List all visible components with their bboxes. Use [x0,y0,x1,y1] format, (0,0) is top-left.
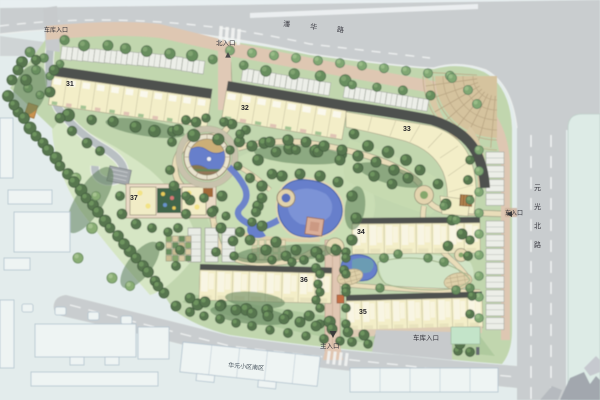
svg-text:主入口: 主入口 [320,341,340,350]
svg-text:36: 36 [300,277,308,284]
svg-text:路: 路 [534,240,541,249]
svg-text:33: 33 [403,126,411,133]
svg-text:34: 34 [357,229,365,236]
svg-text:32: 32 [241,105,249,112]
svg-text:车库入口: 车库入口 [413,333,439,342]
svg-text:光: 光 [534,202,541,211]
svg-text:北入口: 北入口 [216,39,236,47]
svg-text:35: 35 [359,309,367,316]
svg-text:31: 31 [66,81,74,88]
svg-text:东入口: 东入口 [505,209,523,217]
svg-text:元: 元 [534,184,541,192]
svg-text:车库入口: 车库入口 [44,26,68,34]
svg-text:37: 37 [130,195,138,202]
svg-text:北: 北 [534,222,541,230]
